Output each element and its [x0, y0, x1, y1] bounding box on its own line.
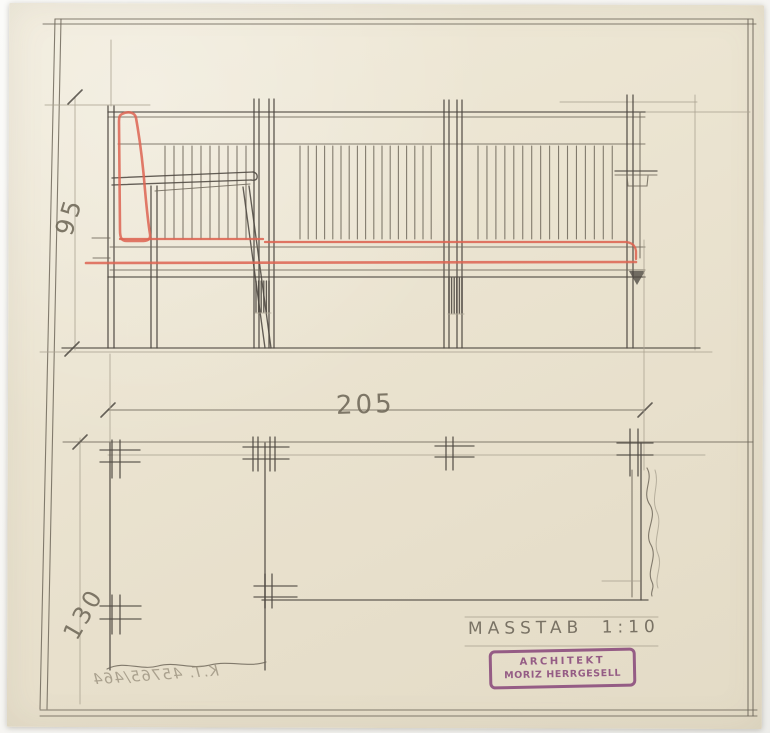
architect-stamp: ARCHITEKT MORIZ HERRGESELL	[489, 647, 637, 689]
break-line	[107, 662, 266, 669]
torn-edge-scribble	[647, 468, 654, 596]
photo-background: 95 205 130 MASSTAB 1:10 K.T. 45765/464 A…	[0, 0, 770, 733]
dimension-annotations	[65, 90, 652, 704]
torn-edge-scribble-2	[654, 470, 659, 588]
red-upholstery-marks	[86, 112, 636, 263]
bench-elevation-view	[62, 95, 700, 348]
leg-hatch-marks	[255, 278, 464, 314]
sheet-border-frame	[40, 19, 757, 716]
backrest-slats	[165, 146, 612, 239]
pencil-linework	[0, 0, 770, 733]
arrow-mark	[629, 271, 645, 285]
stamp-name: MORIZ HERRGESELL	[504, 668, 621, 682]
seat-cushion-top-line-right	[265, 242, 636, 259]
seat-cushion-bottom-line	[86, 262, 636, 263]
post-position-crosses	[100, 429, 653, 634]
bench-plan-view	[63, 429, 753, 670]
